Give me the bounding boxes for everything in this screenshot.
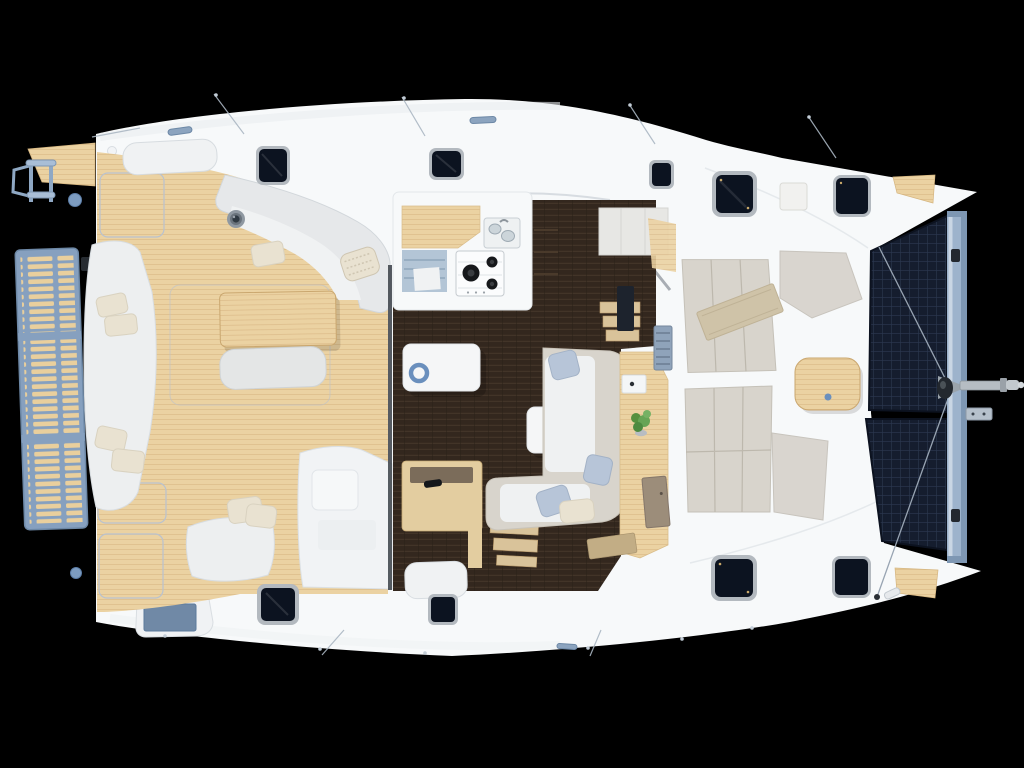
shaft-collar	[1000, 378, 1007, 392]
hatch	[428, 594, 458, 625]
cockpit-bench	[219, 346, 326, 390]
sideboard-knob	[630, 382, 634, 386]
cleat	[557, 643, 577, 649]
nav-seat	[404, 561, 467, 599]
cockpit-table	[220, 291, 341, 353]
port-companionway	[402, 250, 447, 292]
hatch	[832, 556, 871, 598]
nav-side-panel	[468, 490, 482, 568]
anchor-roller	[937, 377, 953, 399]
hatch	[256, 146, 290, 185]
hatch	[649, 160, 674, 189]
shaft-tip	[1018, 382, 1024, 388]
salon	[393, 192, 676, 599]
beam-fitting-plate	[966, 408, 992, 420]
render-stage	[0, 0, 1024, 768]
galley	[393, 192, 532, 310]
catamaran-deck-plan	[0, 0, 1024, 768]
bridle-fitting	[874, 594, 880, 600]
deck-vent	[780, 183, 807, 210]
bowsprit-shaft	[960, 381, 1007, 390]
deck-plate-stbd	[71, 568, 82, 579]
louver-panel	[654, 326, 672, 370]
cleat	[470, 116, 496, 123]
galley-sink	[484, 218, 520, 248]
fwd-teak-wedge	[648, 218, 676, 272]
hatch	[257, 584, 299, 625]
corner-pillow-2	[245, 503, 277, 528]
shaft-cap	[1006, 380, 1019, 390]
roller-highlight	[940, 381, 946, 389]
swim-platform	[15, 248, 88, 530]
hatch	[429, 148, 464, 180]
sunpad-lower	[685, 386, 772, 512]
helm-console	[298, 446, 392, 589]
bulkhead-locker	[617, 286, 634, 331]
cabin-door	[642, 476, 670, 528]
deck-plate-port	[69, 194, 82, 207]
salon-table	[403, 344, 486, 397]
table-plug	[825, 394, 832, 401]
hatch	[833, 175, 871, 217]
gray-wedge-bottom	[772, 433, 828, 520]
beam-cleat-2	[951, 509, 960, 522]
galley-stove	[456, 251, 504, 296]
bow-teak-stbd	[895, 568, 938, 598]
lounge-pillow-4	[111, 448, 145, 473]
sofa-pillow-4	[559, 498, 595, 523]
winch	[227, 210, 245, 228]
foredeck-table	[795, 358, 863, 414]
hatch	[712, 171, 757, 217]
hatch	[711, 555, 757, 601]
transom-bench	[122, 139, 218, 176]
beam-cleat-1	[951, 249, 960, 262]
lounge-pillow-2	[104, 313, 138, 336]
liferaft-lid	[144, 604, 196, 631]
nav-desk-inset	[410, 467, 473, 483]
platform-slats	[20, 254, 82, 524]
salon-aft-bulkhead	[388, 265, 392, 590]
sofa-pillow-2	[582, 454, 613, 487]
